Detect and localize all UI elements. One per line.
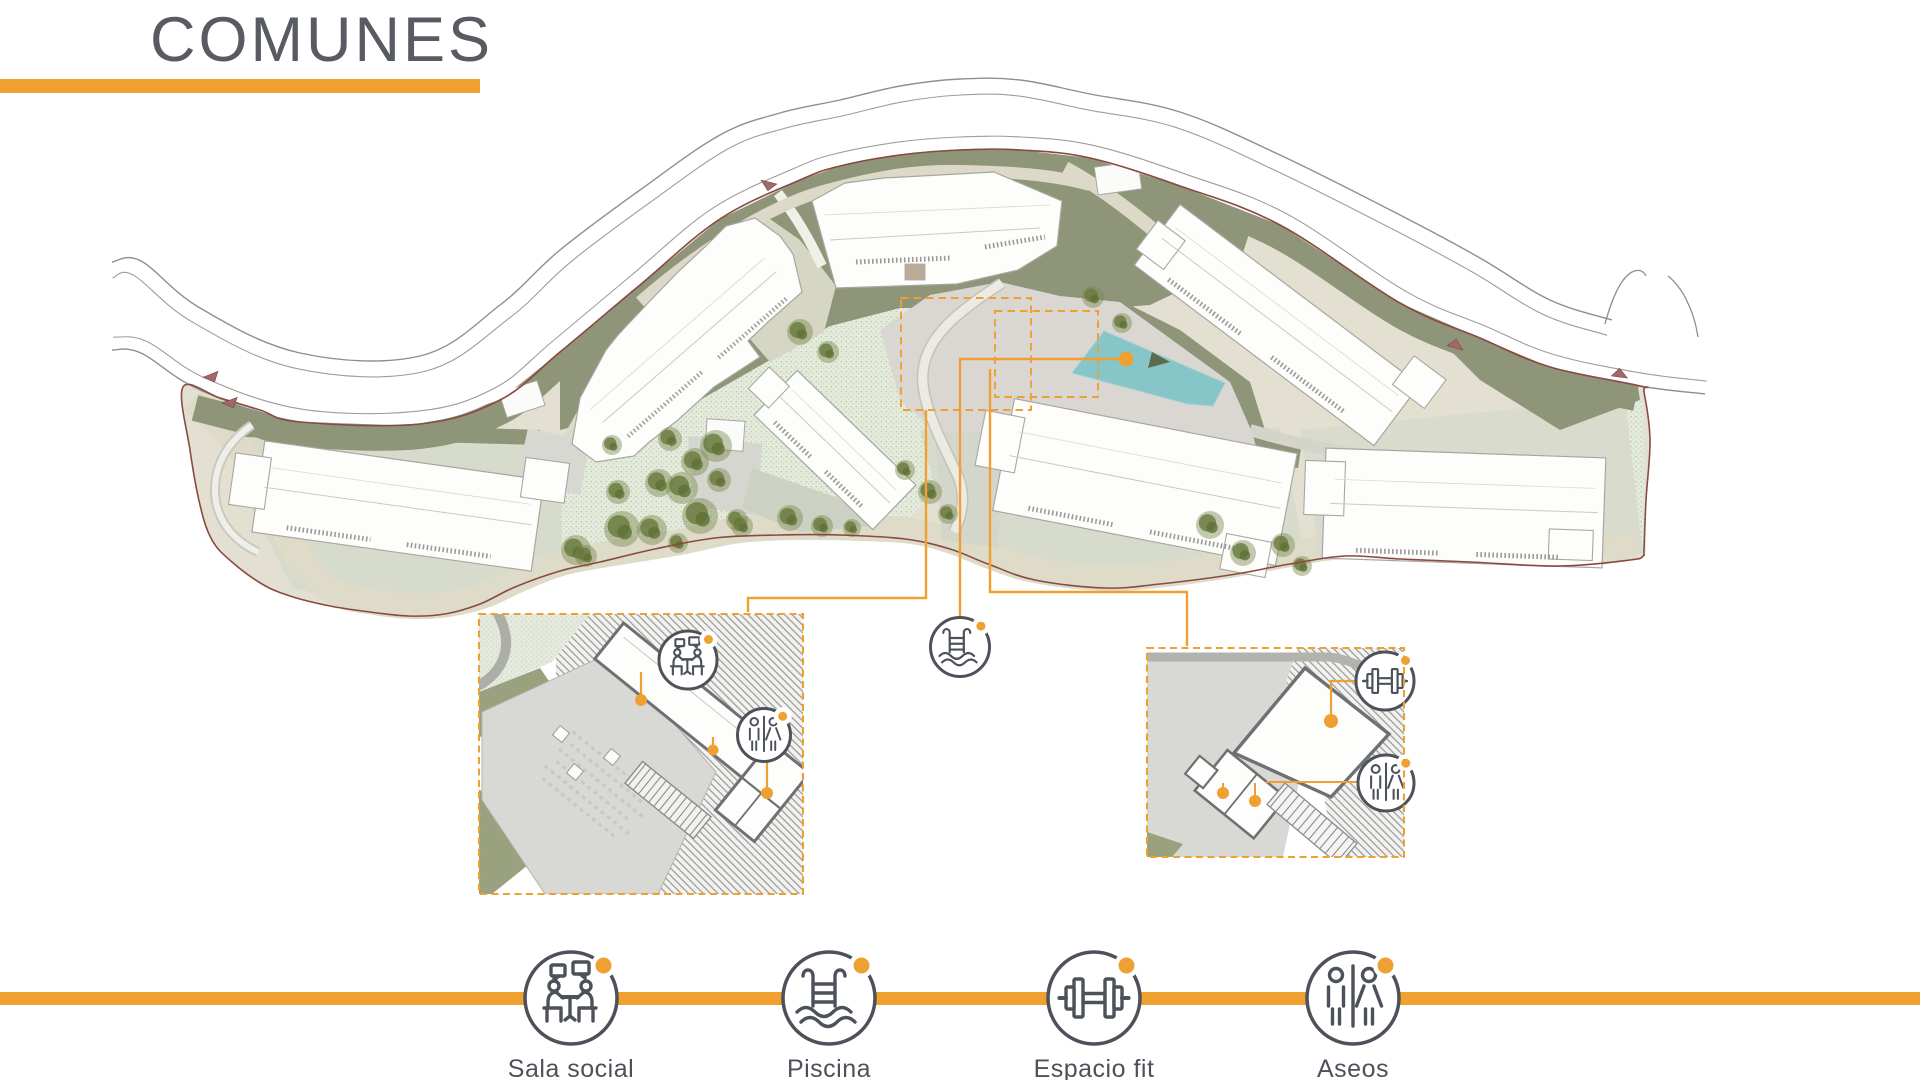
svg-text:Piscina: Piscina xyxy=(787,1055,871,1080)
svg-text:Espacio fit: Espacio fit xyxy=(1034,1055,1155,1080)
svg-text:Sala social: Sala social xyxy=(508,1055,634,1080)
svg-text:Aseos: Aseos xyxy=(1317,1055,1389,1080)
svg-text:COMUNES: COMUNES xyxy=(150,5,493,75)
